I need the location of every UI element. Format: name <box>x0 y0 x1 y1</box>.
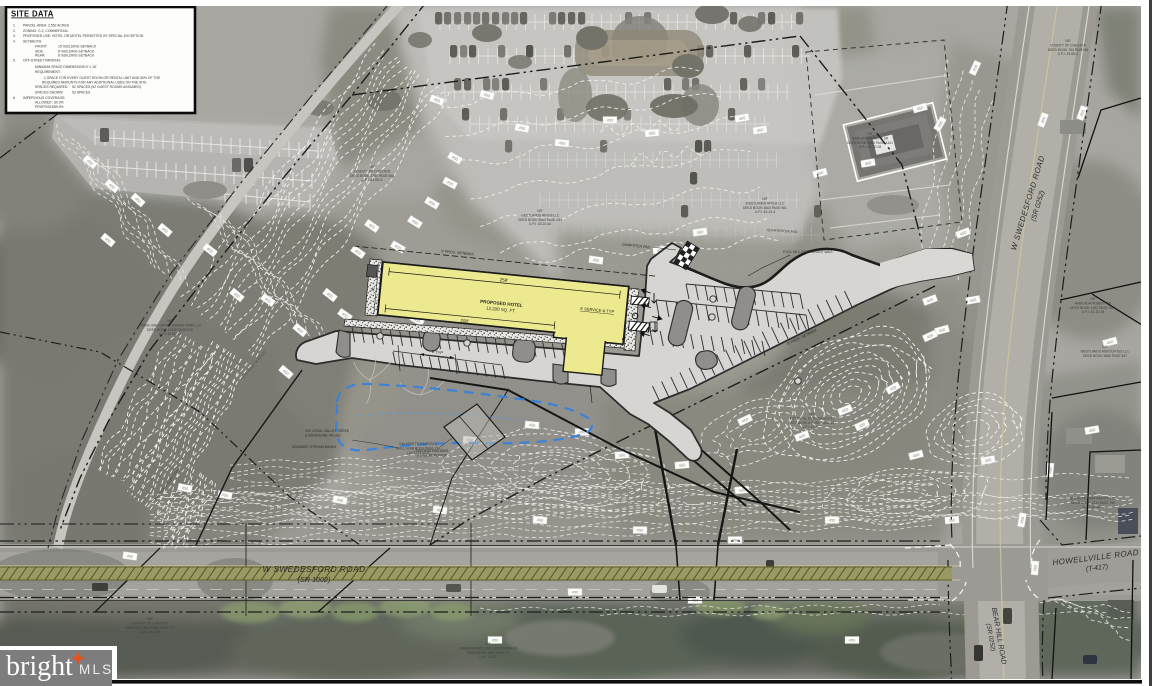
svg-text:PROPOSED:: PROPOSED: <box>35 105 55 109</box>
svg-text:IMPERVIOUS COVERAGE:: IMPERVIOUS COVERAGE: <box>23 96 65 100</box>
svg-text:POOL MILK RESTAURANT WALL: POOL MILK RESTAURANT WALL <box>783 250 834 254</box>
svg-text:DEED BOOK 5663 PAGE 891: DEED BOOK 5663 PAGE 891 <box>518 218 562 222</box>
svg-text:MLS: MLS <box>79 662 113 677</box>
svg-text:DEED BOOK 4567 PAGE 91: DEED BOOK 4567 PAGE 91 <box>467 651 509 655</box>
svg-text:SITE DATA: SITE DATA <box>11 10 54 19</box>
svg-text:REAR:: REAR: <box>35 53 45 57</box>
svg-text:U.P.I. 43-3D-7: U.P.I. 43-3D-7 <box>1083 505 1104 509</box>
svg-text:1.: 1. <box>13 24 16 28</box>
svg-text:MEDIUM GL ASSOCIATES LLC: MEDIUM GL ASSOCIATES LLC <box>788 416 836 420</box>
svg-text:9' x 18': 9' x 18' <box>86 65 97 69</box>
svg-text:N/F: N/F <box>809 412 814 416</box>
svg-text:DEED BOOK 2784 PAGE 666: DEED BOOK 2784 PAGE 666 <box>350 174 394 178</box>
svg-text:208': 208' <box>460 318 469 324</box>
svg-text:(CENTERLINE VALUE): (CENTERLINE VALUE) <box>305 434 341 438</box>
svg-text:450: 450 <box>528 422 536 428</box>
svg-text:DEED BOOK 4663 PAGE 561: DEED BOOK 4663 PAGE 561 <box>743 206 787 210</box>
svg-text:DEED BOOK 784 PAGE 66: DEED BOOK 784 PAGE 66 <box>1048 48 1089 52</box>
svg-text:SPACES REQUIRED:: SPACES REQUIRED: <box>35 85 68 89</box>
svg-text:U.P.I. 43-8-35: U.P.I. 43-8-35 <box>140 630 160 634</box>
svg-text:FRONT:: FRONT: <box>35 45 47 49</box>
svg-text:RAMLAGH ROBERT SR: RAMLAGH ROBERT SR <box>852 136 889 140</box>
svg-text:DEED BOOK 1234 PAGE 789: DEED BOOK 1234 PAGE 789 <box>1071 501 1115 505</box>
svg-text:N/F: N/F <box>1065 39 1070 43</box>
svg-text:U.P.I. 43-1D-28: U.P.I. 43-1D-28 <box>859 145 882 149</box>
svg-text:(SR 1002): (SR 1002) <box>298 575 331 584</box>
svg-text:COUNTY OF CHESTER: COUNTY OF CHESTER <box>132 621 169 625</box>
svg-text:450: 450 <box>637 528 644 533</box>
svg-text:36': 36' <box>371 286 375 291</box>
svg-text:N/F: N/F <box>369 165 374 169</box>
svg-text:U.P.I. 43-5D-1: U.P.I. 43-5D-1 <box>1058 52 1079 56</box>
svg-text:5.: 5. <box>13 59 16 63</box>
svg-text:U.P.I. 43-67: U.P.I. 43-67 <box>479 655 496 659</box>
svg-text:COUNTY OF CHESTER: COUNTY OF CHESTER <box>354 169 391 173</box>
svg-text:TRANS HWH OFFICE BRIGHT PARK L: TRANS HWH OFFICE BRIGHT PARK LLC <box>139 323 203 327</box>
svg-text:450: 450 <box>648 130 656 136</box>
svg-text:6.: 6. <box>13 96 16 100</box>
svg-text:U.P.I. 43-10-44: U.P.I. 43-10-44 <box>529 222 551 226</box>
svg-text:450: 450 <box>678 462 686 468</box>
svg-text:450: 450 <box>849 638 856 643</box>
svg-text:15' BUILDING SETBACK: 15' BUILDING SETBACK <box>58 45 97 49</box>
svg-text:PROPOSED USE: HOTEL OR MOTEL: PROPOSED USE: HOTEL OR MOTEL PERMITTED B… <box>23 34 144 38</box>
svg-text:52 SPACES (52 GUEST ROOMS ASSU: 52 SPACES (52 GUEST ROOMS ASSUMED) <box>72 85 141 89</box>
svg-text:REQUIRED AMOUNTS FOR ANY ADDIT: REQUIRED AMOUNTS FOR ANY ADDITIONAL USES… <box>42 80 147 84</box>
svg-text:COUNTY OF CHESTER: COUNTY OF CHESTER <box>1050 43 1087 47</box>
svg-text:N/F: N/F <box>762 197 767 201</box>
svg-text:(1971) 43-10-8: (1971) 43-10-8 <box>407 451 429 455</box>
svg-text:N/F: N/F <box>1090 297 1095 301</box>
svg-text:U.P.I. 43-1D-28: U.P.I. 43-1D-28 <box>1082 310 1105 314</box>
svg-text:SETBACKS:: SETBACKS: <box>23 39 42 43</box>
svg-text:450: 450 <box>618 452 626 458</box>
svg-text:258': 258' <box>499 277 508 283</box>
svg-text:8' BUILDING SETBACK: 8' BUILDING SETBACK <box>58 53 95 57</box>
svg-text:450: 450 <box>492 638 499 643</box>
svg-text:DEED BOOK 4153 PAGE 1441: DEED BOOK 4153 PAGE 1441 <box>847 141 893 145</box>
svg-text:N/F: N/F <box>537 209 542 213</box>
svg-text:BUCKEYE APARTMENTS LLC: BUCKEYE APARTMENTS LLC <box>1070 496 1116 500</box>
svg-text:2.: 2. <box>13 29 16 33</box>
svg-text:MINIMUM SPACE DIMENSIONS:: MINIMUM SPACE DIMENSIONS: <box>35 65 86 69</box>
svg-text:SWEDESFORD LINE CONDOMINIUM: SWEDESFORD LINE CONDOMINIUM <box>459 646 516 650</box>
svg-text:450: 450 <box>536 517 544 523</box>
svg-text:450: 450 <box>732 538 739 543</box>
svg-text:WESTLANDS RPG-B LLC: WESTLANDS RPG-B LLC <box>521 213 560 217</box>
svg-text:4.: 4. <box>13 39 16 43</box>
svg-text:N/F: N/F <box>147 617 152 621</box>
svg-text:53 SPACES: 53 SPACES <box>72 91 91 95</box>
svg-text:450: 450 <box>948 517 956 523</box>
svg-text:RAMLAGH ROBERT SR: RAMLAGH ROBERT SR <box>1075 301 1112 305</box>
svg-text:450: 450 <box>829 518 836 523</box>
svg-text:100' LEGAL VALLEY CREEK: 100' LEGAL VALLEY CREEK <box>305 429 350 433</box>
svg-text:450: 450 <box>558 140 566 146</box>
svg-text:DEED BOOK 8 PURL PAGE 477: DEED BOOK 8 PURL PAGE 477 <box>788 421 836 425</box>
svg-text:N/F: N/F <box>1090 492 1095 496</box>
svg-text:3.: 3. <box>13 34 16 38</box>
svg-text:ASSUMED STREAM BANKS: ASSUMED STREAM BANKS <box>292 445 337 449</box>
svg-text:450: 450 <box>1032 564 1038 572</box>
svg-text:DEED BOOK 4152 PAGE 1441: DEED BOOK 4152 PAGE 1441 <box>1070 306 1116 310</box>
svg-text:REQUIREMENT:: REQUIREMENT: <box>35 70 61 74</box>
svg-text:GALASSETTI EASTOM &: GALASSETTI EASTOM & <box>399 442 438 446</box>
svg-text:U.P.I. 43-5D-5: U.P.I. 43-5D-5 <box>362 178 383 182</box>
svg-text:WESTLANDS RPG-B LLC: WESTLANDS RPG-B LLC <box>746 201 785 205</box>
svg-text:450: 450 <box>572 590 579 595</box>
svg-text:W SWEDESFORD ROAD: W SWEDESFORD ROAD <box>262 565 365 574</box>
svg-text:bright: bright <box>6 651 73 682</box>
svg-text:U.P.I. 43-10-7: U.P.I. 43-10-7 <box>802 425 822 429</box>
svg-text:U.P.I. 43-5D-13: U.P.I. 43-5D-13 <box>159 332 182 336</box>
svg-text:WESTLANDS ASSOCIATES LLC: WESTLANDS ASSOCIATES LLC <box>1080 349 1130 353</box>
svg-text:N/F: N/F <box>867 132 872 136</box>
svg-text:U.P.I. 43-10-4: U.P.I. 43-10-4 <box>755 210 775 214</box>
svg-text:N/F: N/F <box>167 319 172 323</box>
svg-text:N/F: N/F <box>485 642 490 646</box>
svg-text:N/F: N/F <box>1102 345 1107 349</box>
svg-text:ZONING: C-2, COMMERCIAL: ZONING: C-2, COMMERCIAL <box>23 29 69 33</box>
svg-text:SPACES SHOWN:: SPACES SHOWN: <box>35 91 63 95</box>
svg-text:DEED BOOK 5686 PAGE 567: DEED BOOK 5686 PAGE 567 <box>1083 354 1127 358</box>
svg-text:1 SPACE FOR EVERY GUEST ROOM O: 1 SPACE FOR EVERY GUEST ROOM OR RENTAL U… <box>44 76 161 80</box>
svg-text:DEED BOOK 12345 PAGE 678: DEED BOOK 12345 PAGE 678 <box>147 328 193 332</box>
svg-text:59.9%: 59.9% <box>54 105 64 109</box>
svg-text:450: 450 <box>607 118 614 123</box>
svg-text:SWEDESFORD ROAD PAGE 774: SWEDESFORD ROAD PAGE 774 <box>125 626 175 630</box>
svg-text:WALL SLAB BLDG PAGE 234: WALL SLAB BLDG PAGE 234 <box>396 446 440 450</box>
svg-text:PARCEL AREA: 2.552 ACRES: PARCEL AREA: 2.552 ACRES <box>23 24 70 28</box>
svg-text:OFF-STREET PARKING:: OFF-STREET PARKING: <box>23 59 61 63</box>
